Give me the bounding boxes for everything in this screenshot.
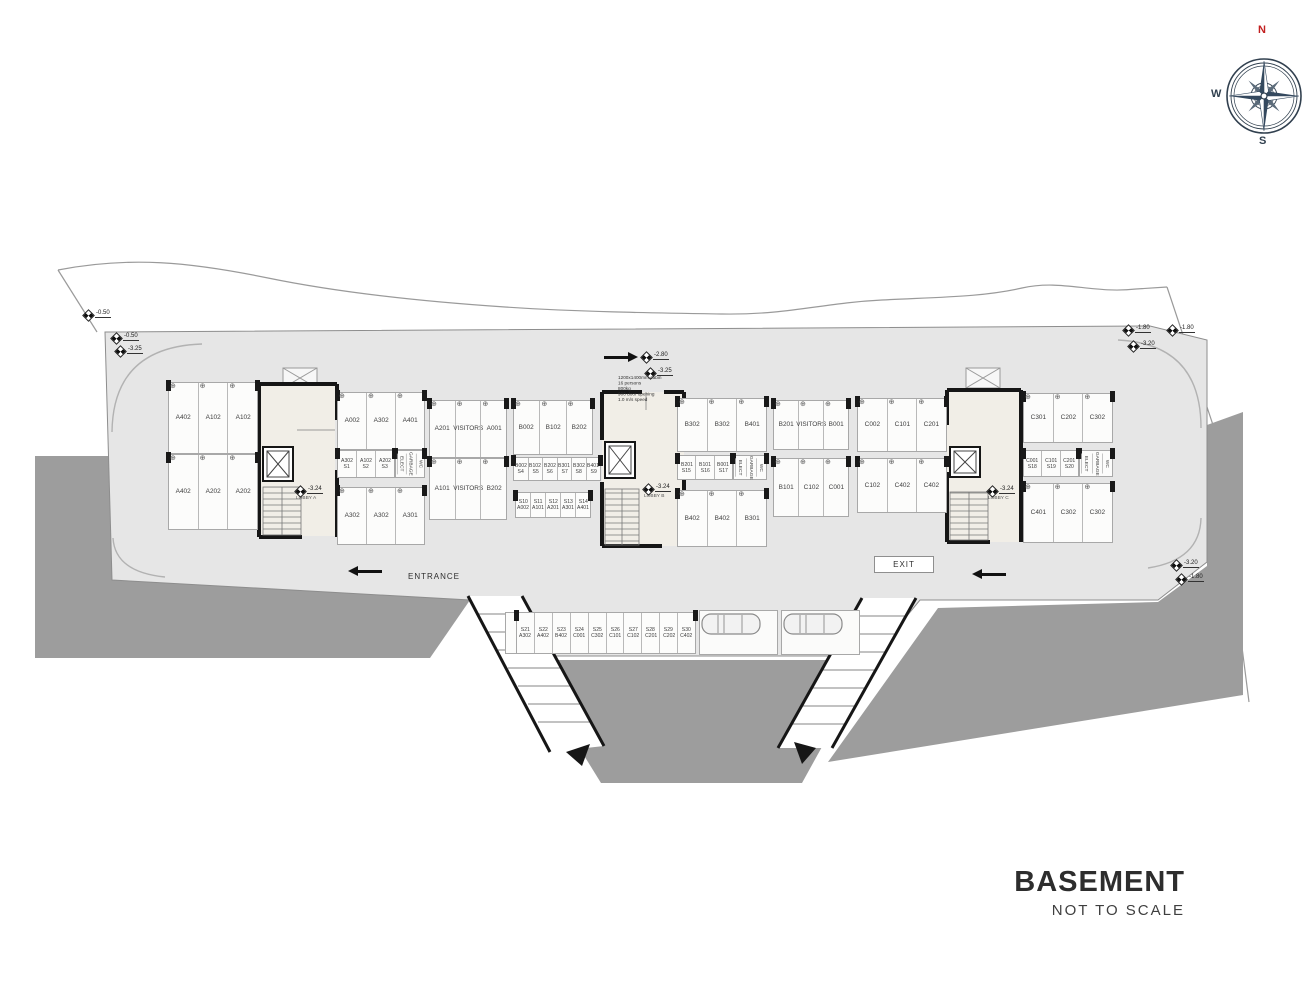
column-marker-icon: ⊕ xyxy=(738,491,744,498)
column-marker-icon: ⊕ xyxy=(482,401,488,408)
parking-stall: ⊕A301 xyxy=(395,488,424,544)
parking-stall: ⊕B201 xyxy=(774,401,798,449)
column-marker-icon: ⊕ xyxy=(859,459,865,466)
parking-stall: ⊕A202 xyxy=(198,455,228,529)
parking-stall: B301S7 xyxy=(557,458,572,480)
benchmark-icon xyxy=(110,332,123,345)
parking-row-c-left-2: ⊕C102⊕C402⊕C402 xyxy=(857,458,947,513)
storage-row-b-right: B201S15B101S16B001S17 xyxy=(677,455,733,480)
parking-stall: S12A201 xyxy=(545,493,560,517)
column-marker-icon: ⊕ xyxy=(457,401,463,408)
parking-row-a-left-2: ⊕A402⊕A202⊕A202 xyxy=(168,454,258,530)
parking-stall: S27C102 xyxy=(623,613,641,653)
elevator-note: 1200x1400mm cabin 16 persons 800kg 900 d… xyxy=(618,376,661,403)
parking-stall: S29C202 xyxy=(659,613,677,653)
level-marker: -3.25 xyxy=(116,346,143,356)
parking-row-c-left-1: ⊕C002⊕C101⊕C201 xyxy=(857,398,947,452)
parking-row-b-right-2: ⊕B402⊕B402⊕B301 xyxy=(677,490,767,547)
floor-plan-sheet: ⊕A402⊕A102⊕A102 ⊕A402⊕A202⊕A202 ⊕A002⊕A3… xyxy=(0,0,1308,981)
service-room: ELECT xyxy=(735,458,744,476)
parking-stall: B202S6 xyxy=(542,458,557,480)
column-marker-icon: ⊕ xyxy=(1025,484,1031,491)
parking-row-visitors-b-2: ⊕B101⊕C102⊕C001 xyxy=(773,458,849,517)
column-marker-icon: ⊕ xyxy=(709,399,715,406)
column-marker-icon: ⊕ xyxy=(889,399,895,406)
service-room: GARBAGE xyxy=(1092,454,1101,474)
parking-stall: S21A302 xyxy=(517,613,534,653)
parking-stall: B101S16 xyxy=(695,456,713,479)
column-marker-icon: ⊕ xyxy=(200,383,206,390)
parking-stall: S13A301 xyxy=(560,493,575,517)
parking-stall: ⊕C302 xyxy=(1082,394,1112,442)
column-marker-icon: ⊕ xyxy=(339,488,345,495)
level-marker: -0.50 xyxy=(112,333,139,343)
parking-stall: S11A101 xyxy=(530,493,545,517)
parking-stall: ⊕A402 xyxy=(169,455,198,529)
parking-stall: ⊕B302 xyxy=(678,399,707,451)
column-marker-icon: ⊕ xyxy=(1084,484,1090,491)
lobby-c-level: -3.24 LOBBY C xyxy=(988,486,1015,502)
column-marker-icon: ⊕ xyxy=(800,401,806,408)
column-marker-icon: ⊕ xyxy=(679,399,685,406)
parking-row-visitors-a-1: ⊕A201⊕VISITORS⊕A001 xyxy=(429,400,507,458)
title-block: BASEMENT NOT TO SCALE xyxy=(1014,866,1185,919)
column-marker-icon: ⊕ xyxy=(775,401,781,408)
compass-south-label: S xyxy=(1259,135,1266,147)
service-room: GARBAGE xyxy=(406,454,413,475)
parking-stall: ⊕B102 xyxy=(539,401,565,454)
column-marker-icon: ⊕ xyxy=(918,399,924,406)
parking-row-visitors-a-2: ⊕A101⊕VISITORS⊕B202 xyxy=(429,458,507,520)
parking-stall: ⊕B302 xyxy=(707,399,737,451)
parking-stall: C001S18 xyxy=(1024,451,1041,476)
parking-stall: ⊕C402 xyxy=(887,459,917,512)
core-a xyxy=(259,384,337,537)
level-marker: -1.80 xyxy=(1168,325,1195,335)
service-rooms-b: ELECTGARBAGEWC xyxy=(733,455,767,480)
car-bay-2 xyxy=(781,610,860,655)
parking-stall: S23B402 xyxy=(552,613,570,653)
parking-stall: ⊕VISITORS xyxy=(455,401,481,457)
parking-stall: ⊕B202 xyxy=(566,401,592,454)
service-room: WC xyxy=(756,458,765,476)
car-icon xyxy=(782,611,844,637)
column-marker-icon: ⊕ xyxy=(431,401,437,408)
column-marker-icon: ⊕ xyxy=(397,488,403,495)
level-marker: -3.20 xyxy=(1172,560,1199,570)
column-marker-icon: ⊕ xyxy=(397,393,403,400)
parking-stall: ⊕C001 xyxy=(823,459,848,516)
parking-stall: ⊕C002 xyxy=(858,399,887,451)
exit-direction-arrow xyxy=(972,570,1006,579)
column-marker-icon: ⊕ xyxy=(825,401,831,408)
column-marker-icon: ⊕ xyxy=(229,455,235,462)
parking-stall: ⊕A001 xyxy=(480,401,506,457)
parking-stall: B201S15 xyxy=(678,456,695,479)
compass-north-label: N xyxy=(1258,24,1266,36)
parking-stall: ⊕VISITORS xyxy=(455,459,481,519)
benchmark-icon xyxy=(640,351,653,364)
benchmark-icon xyxy=(1122,324,1135,337)
column-marker-icon: ⊕ xyxy=(1025,394,1031,401)
storage-row-b-top: B002S4B102S5B202S6B301S7B302S8B401S9 xyxy=(513,457,601,481)
parking-stall: ⊕B101 xyxy=(774,459,798,516)
level-marker: -1.80 xyxy=(1177,574,1204,584)
benchmark-icon xyxy=(114,345,127,358)
car-icon xyxy=(700,611,762,637)
compass-west-label: W xyxy=(1211,88,1221,100)
column-marker-icon: ⊕ xyxy=(889,459,895,466)
column-marker-icon: ⊕ xyxy=(1055,484,1061,491)
parking-stall: S26C101 xyxy=(606,613,624,653)
column-marker-icon: ⊕ xyxy=(368,393,374,400)
column-marker-icon: ⊕ xyxy=(775,459,781,466)
column-marker-icon: ⊕ xyxy=(800,459,806,466)
parking-stall: ⊕C102 xyxy=(798,459,823,516)
parking-stall: ⊕A102 xyxy=(227,383,257,453)
parking-row-c-right-1: ⊕C301⊕C202⊕C302 xyxy=(1023,393,1113,443)
column-marker-icon: ⊕ xyxy=(170,383,176,390)
parking-stall: B001S17 xyxy=(714,456,732,479)
parking-stall: B102S5 xyxy=(528,458,543,480)
parking-stall: S14A401 xyxy=(575,493,590,517)
parking-stall: ⊕B401 xyxy=(736,399,766,451)
parking-stall: ⊕C102 xyxy=(858,459,887,512)
parking-stall: S30C402 xyxy=(677,613,695,653)
column-marker-icon: ⊕ xyxy=(1055,394,1061,401)
benchmark-icon xyxy=(1166,324,1179,337)
column-marker-icon: ⊕ xyxy=(1084,394,1090,401)
column-marker-icon: ⊕ xyxy=(200,455,206,462)
parking-stall: ⊕C101 xyxy=(887,399,917,451)
parking-stall: S25C302 xyxy=(588,613,606,653)
column-marker-icon: ⊕ xyxy=(568,401,574,408)
parking-stall: ⊕B301 xyxy=(736,491,766,546)
parking-stall: ⊕A402 xyxy=(169,383,198,453)
storage-strip-bottom: S21A302S22A402S23B402S24C001S25C302S26C1… xyxy=(516,612,696,654)
parking-stall: B401S9 xyxy=(586,458,601,480)
parking-stall: ⊕A302 xyxy=(366,393,395,449)
column-marker-icon: ⊕ xyxy=(482,459,488,466)
storage-row-a: A302S1A102S2A202S3 xyxy=(337,450,395,478)
ramp-direction-arrow xyxy=(604,353,638,362)
column-marker-icon: ⊕ xyxy=(709,491,715,498)
storage-row-b-bottom: S10A002S11A101S12A201S13A301S14A401 xyxy=(515,492,591,518)
level-marker: -0.50 xyxy=(84,310,111,320)
parking-stall: B302S8 xyxy=(571,458,586,480)
parking-stall: S28C201 xyxy=(641,613,659,653)
level-marker: -2.80 xyxy=(642,352,669,362)
parking-stall: ⊕A202 xyxy=(227,455,257,529)
parking-row-c-right-2: ⊕C401⊕C302⊕C302 xyxy=(1023,483,1113,543)
parking-stall: ⊕A401 xyxy=(395,393,424,449)
parking-row-a-right-2: ⊕A302⊕A302⊕A301 xyxy=(337,487,425,545)
entrance-direction-arrow xyxy=(348,567,382,576)
parking-stall: ⊕B202 xyxy=(480,459,506,519)
exit-label: EXIT xyxy=(874,556,934,573)
parking-stall: ⊕C202 xyxy=(1053,394,1083,442)
level-marker: -1.80 xyxy=(1124,325,1151,335)
service-rooms-c: ELECTGARBAGEWC xyxy=(1079,450,1113,477)
sheet-title: BASEMENT xyxy=(1014,866,1185,898)
parking-stall: ⊕A302 xyxy=(366,488,395,544)
parking-stall: ⊕C302 xyxy=(1082,484,1112,542)
parking-stall: ⊕VISITORS xyxy=(798,401,823,449)
parking-stall: ⊕A302 xyxy=(338,488,366,544)
parking-stall: C201S20 xyxy=(1060,451,1078,476)
column-marker-icon: ⊕ xyxy=(541,401,547,408)
parking-stall: ⊕B402 xyxy=(678,491,707,546)
service-room: WC xyxy=(416,454,423,475)
compass-rose: N W S xyxy=(1212,28,1308,160)
column-marker-icon: ⊕ xyxy=(679,491,685,498)
lobby-b-level: -3.24 LOBBY B xyxy=(644,484,671,500)
parking-stall: A202S3 xyxy=(375,451,394,477)
parking-row-a-right-1: ⊕A002⊕A302⊕A401 xyxy=(337,392,425,450)
column-marker-icon: ⊕ xyxy=(738,399,744,406)
benchmark-icon xyxy=(82,309,95,322)
parking-stall: ⊕A201 xyxy=(430,401,455,457)
entrance-label: ENTRANCE xyxy=(408,572,460,581)
column-marker-icon: ⊕ xyxy=(515,401,521,408)
parking-row-b-left: ⊕B002⊕B102⊕B202 xyxy=(513,400,593,455)
service-room: ELECT xyxy=(1081,454,1090,474)
parking-stall: ⊕C201 xyxy=(916,399,946,451)
parking-stall: A302S1 xyxy=(338,451,356,477)
column-marker-icon: ⊕ xyxy=(339,393,345,400)
parking-stall: ⊕B002 xyxy=(514,401,539,454)
column-marker-icon: ⊕ xyxy=(368,488,374,495)
parking-stall: C101S19 xyxy=(1041,451,1059,476)
parking-stall: ⊕C401 xyxy=(1024,484,1053,542)
column-marker-icon: ⊕ xyxy=(825,459,831,466)
service-room: WC xyxy=(1102,454,1111,474)
parking-stall: ⊕A002 xyxy=(338,393,366,449)
column-marker-icon: ⊕ xyxy=(918,459,924,466)
parking-stall: S24C001 xyxy=(570,613,588,653)
parking-stall: ⊕A101 xyxy=(430,459,455,519)
parking-stall: ⊕B001 xyxy=(823,401,848,449)
parking-stall: S10A002 xyxy=(516,493,530,517)
parking-stall: ⊕C302 xyxy=(1053,484,1083,542)
core-b xyxy=(602,392,684,546)
benchmark-icon xyxy=(1127,340,1140,353)
core-c xyxy=(947,390,1021,542)
column-marker-icon: ⊕ xyxy=(170,455,176,462)
column-marker-icon: ⊕ xyxy=(457,459,463,466)
service-room: ELECT xyxy=(397,454,404,475)
storage-row-c: C001S18C101S19C201S20 xyxy=(1023,450,1079,477)
parking-stall: ⊕C301 xyxy=(1024,394,1053,442)
parking-row-a-left-1: ⊕A402⊕A102⊕A102 xyxy=(168,382,258,454)
parking-row-b-right-1: ⊕B302⊕B302⊕B401 xyxy=(677,398,767,452)
parking-row-visitors-b-1: ⊕B201⊕VISITORS⊕B001 xyxy=(773,400,849,450)
column-marker-icon: ⊕ xyxy=(229,383,235,390)
parking-stall: S22A402 xyxy=(534,613,552,653)
parking-stall: ⊕B402 xyxy=(707,491,737,546)
parking-stall: ⊕A102 xyxy=(198,383,228,453)
benchmark-icon xyxy=(1170,559,1183,572)
column-marker-icon: ⊕ xyxy=(431,459,437,466)
parking-stall: B002S4 xyxy=(514,458,528,480)
service-rooms-a: ELECTGARBAGEWC xyxy=(395,450,425,478)
column-marker-icon: ⊕ xyxy=(859,399,865,406)
benchmark-icon xyxy=(1175,573,1188,586)
parking-stall: A102S2 xyxy=(356,451,375,477)
lobby-a-level: -3.24 LOBBY A xyxy=(296,486,323,502)
parking-stall: ⊕C402 xyxy=(916,459,946,512)
sheet-subtitle: NOT TO SCALE xyxy=(1014,902,1185,919)
service-room: GARBAGE xyxy=(746,458,755,476)
car-bay-1 xyxy=(699,610,778,655)
level-marker: -3.20 xyxy=(1129,341,1156,351)
